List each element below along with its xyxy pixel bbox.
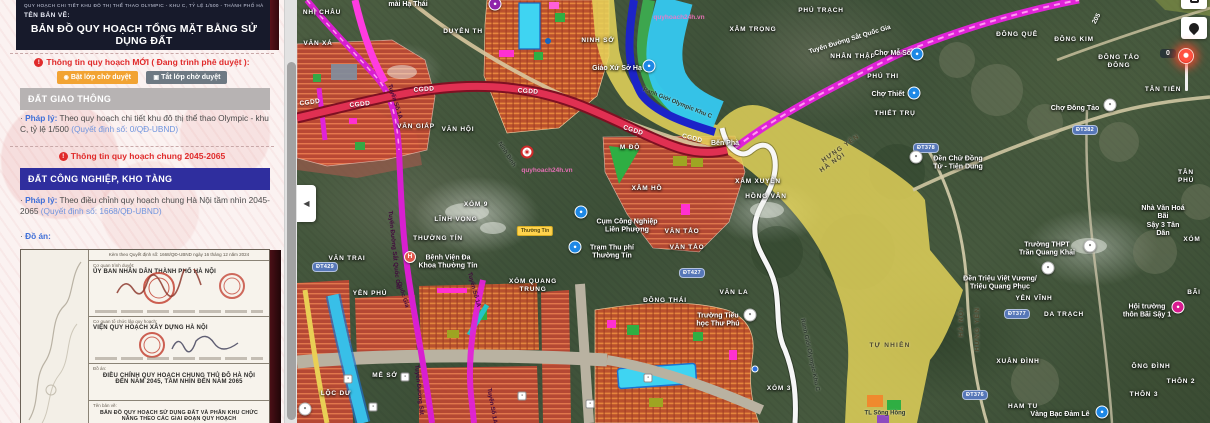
planning-sidebar: QUY HOẠCH CHI TIẾT KHU ĐÔ THỊ THỂ THAO O…: [0, 0, 284, 423]
drawing-title: BẢN ĐỒ QUY HOẠCH TỔNG MẶT BẰNG SỬ DỤNG Đ…: [24, 23, 264, 47]
map-label: LỘC DƯ: [321, 390, 351, 398]
section-header-giao-thong: ĐẤT GIAO THÔNG: [20, 88, 270, 110]
map-label: Ninh Bình: [495, 141, 516, 169]
map-label: HÀ NỘI: [818, 151, 847, 175]
document-issue-line: Kèm theo Quyết định số: 1668/QĐ-UBND ngà…: [89, 250, 269, 261]
map-pin-icon: [1187, 21, 1201, 35]
map-label: BÃI: [1187, 289, 1201, 297]
planning-map-app: QUY HOẠCH CHI TIẾT KHU ĐÔ THỊ THỂ THAO O…: [0, 0, 1210, 423]
map-label: Ranh Giới Olympic-Khu C: [798, 318, 820, 392]
map-label: CGDD: [413, 85, 434, 94]
map-label: HAM TU: [1008, 403, 1038, 411]
poi-icon-jewelry[interactable]: ●: [1096, 406, 1109, 419]
map-label: Tuyến Số 1A: [484, 388, 497, 423]
map-label: THÔN 3: [1130, 391, 1159, 399]
map-label: NHÂN THẬP: [830, 53, 875, 61]
do-an-label: · Đồ án:: [20, 231, 270, 242]
map-label: Trường Tiểu học Thư Phú: [696, 313, 739, 330]
alert-icon: !: [34, 58, 43, 67]
map-label: HƯNG YÊN: [974, 307, 982, 352]
map-label: Vàng Bạc Đảm Lê: [1030, 411, 1089, 419]
hospital-icon[interactable]: H: [404, 251, 416, 263]
map-label: VĂN GIÁP: [397, 123, 435, 131]
decorative-strip: [270, 0, 279, 50]
document-drawing-name: BẢN ĐỒ QUY HOẠCH SỬ DỤNG ĐẤT VÀ PHÂN KHU…: [89, 408, 269, 423]
approval-document-thumbnail[interactable]: Kèm theo Quyết định số: 1668/QĐ-UBND ngà…: [20, 249, 270, 423]
map-label: CGDD: [349, 100, 370, 110]
pending-layer-on-button[interactable]: ◉Bật lớp chờ duyệt: [57, 71, 138, 84]
map-label: CGDD: [299, 98, 321, 109]
poi-icon-market[interactable]: ●: [1104, 99, 1117, 112]
map-canvas[interactable]: NHỊ CHÂUVĂN XÁDUYÊN THNINH SỞXÂM TRỌNGPH…: [297, 0, 1210, 423]
map-label: XÓM 9: [464, 201, 488, 209]
chung-heading: !Thông tin quy hoạch chung 2045-2065: [0, 151, 284, 161]
document-signature-block: Kèm theo Quyết định số: 1668/QĐ-UBND ngà…: [89, 250, 269, 423]
map-label: VĂN HỘI: [442, 126, 475, 134]
map-label: TL Sông Hồng: [865, 410, 906, 417]
map-label: Chợ Đông Tảo: [1051, 105, 1100, 113]
map-label: M ĐỘ: [620, 144, 640, 152]
drawing-title-block: QUY HOẠCH CHI TIẾT KHU ĐÔ THỊ THỂ THAO O…: [16, 0, 270, 50]
document-project-name: ĐIỀU CHỈNH QUY HOẠCH CHUNG THỦ ĐÔ HÀ NỘI…: [89, 371, 269, 387]
chevron-left-icon: ◀: [303, 199, 309, 208]
map-label: Nhà Văn Hoá Bãi Sậy 3 Tân Dân: [1140, 205, 1187, 239]
map-label: TÂN TIẾN: [1145, 86, 1181, 94]
transit-icon[interactable]: ▪: [344, 375, 353, 384]
map-label: THIẾT TRỤ: [874, 110, 915, 118]
map-label: XÂM XUYÊN: [735, 178, 781, 186]
road-badge: ĐT427: [679, 268, 705, 278]
poi-icon-school[interactable]: ●: [744, 309, 757, 322]
map-label: Tuyến Đường Sắt: [412, 365, 424, 416]
transit-icon[interactable]: ▪: [644, 374, 653, 383]
map-label: PHÚ TRẠCH: [798, 7, 843, 15]
document-label: Tên bản vẽ:: [89, 401, 269, 408]
map-label: XÓM QUANG TRUNG: [509, 278, 557, 294]
layers-icon: [1190, 0, 1199, 3]
pending-layer-off-button[interactable]: ▣Tắt lớp chờ duyệt: [146, 71, 227, 84]
road-badge: ĐT377: [1004, 309, 1030, 319]
poi-icon[interactable]: ●: [299, 403, 312, 416]
document-label: Cơ quan trình duyệt:: [89, 261, 269, 268]
poi-icon[interactable]: [752, 366, 759, 373]
map-label: DUYÊN TH: [443, 28, 483, 36]
poi-icon-community-hall[interactable]: ●: [1172, 301, 1185, 314]
map-label: Trạm Thu phí Thường Tín: [590, 245, 634, 262]
map-label: Trường THPT Trần Quang Khải: [1019, 242, 1075, 259]
map-label: Đền Triệu Việt Vương/ Triệu Quang Phục: [963, 276, 1037, 293]
map-label: YÊN VĨNH: [1015, 295, 1052, 303]
map-label: HỒNG VÂN: [745, 193, 786, 201]
poi-icon-school[interactable]: ●: [1084, 240, 1097, 253]
map-label: Tuyến Số 1A: [385, 84, 403, 120]
poi-icon-market[interactable]: ●: [911, 48, 924, 61]
map-label: VĂN XÁ: [303, 40, 332, 48]
poi-icon-church[interactable]: ●: [643, 60, 656, 73]
poi-icon-market[interactable]: ●: [908, 87, 921, 100]
map-label: ĐÔNG QUÊ: [996, 31, 1038, 39]
map-label: quyhoach24h.vn: [521, 167, 572, 175]
map-label: Bến Phà: [711, 140, 739, 148]
map-label: ĐÔNG TẢO ĐÔNG: [1098, 54, 1139, 70]
new-planning-heading: !Thông tin quy hoạch MỚI ( Đang trình ph…: [0, 57, 284, 67]
map-label: XUÂN ĐÌNH: [996, 358, 1039, 366]
map-label: YÊN PHÚ: [353, 290, 388, 298]
legal-note-1: · Pháp lý: Theo quy hoạch chi tiết khu đ…: [20, 113, 270, 135]
map-label: XÂM TRỌNG: [730, 26, 777, 34]
map-label: VĂN LA: [720, 289, 749, 297]
map-label: HÀ NỘI: [958, 307, 966, 337]
map-layers-button[interactable]: [1181, 0, 1207, 9]
map-label: VĂN TẢO: [670, 244, 705, 252]
transit-icon[interactable]: ▪: [369, 403, 378, 412]
sidebar-scrollbar[interactable]: [284, 0, 297, 423]
document-label: Cơ quan tổ chức lập quy hoạch:: [89, 317, 269, 324]
map-label: CGDD: [517, 87, 538, 96]
radio-icon: ◉: [64, 75, 69, 81]
map-label: Ranh Giới Olympic Khu C: [642, 87, 713, 121]
dropped-marker-stick: [1185, 63, 1188, 91]
map-label: Tuyến Số 1A: [465, 272, 481, 309]
poi-icon-industrial-cluster[interactable]: ●: [575, 206, 588, 219]
document-label: Đồ án:: [89, 364, 269, 371]
map-label: VĂN TẢO: [665, 228, 700, 236]
map-label: Quốc Gia: [394, 281, 409, 309]
map-label: HƯNG YÊN: [821, 133, 862, 165]
map-label: TÂN PHÚ: [1174, 169, 1198, 185]
poi-icon-toll-station[interactable]: ●: [569, 241, 582, 254]
scrollbar-thumb[interactable]: [287, 62, 296, 420]
map-label: Cụm Công Nghiệp Liên Phượng: [596, 219, 657, 236]
poi-icon-temple[interactable]: ●: [910, 151, 923, 164]
map-label: ĐÔNG KIM: [1054, 36, 1094, 44]
decision-link[interactable]: (Quyết định số: 0/QĐ-UBND): [71, 124, 178, 134]
map-label: 205: [1091, 12, 1103, 25]
divider: [10, 146, 274, 147]
sidebar-collapse-button[interactable]: ◀: [297, 185, 316, 222]
transit-icon[interactable]: ▪: [401, 373, 410, 382]
map-label: mài Hạ Thái: [388, 1, 427, 9]
map-label: Thường Tín: [517, 226, 553, 236]
map-label: Tuyến Đường Sắt Quốc Gia: [385, 211, 400, 290]
map-label: THÔN 2: [1167, 378, 1196, 386]
ten-ban-ve-label: TÊN BẢN VẼ:: [24, 12, 264, 19]
map-label: CGDD: [622, 124, 644, 138]
map-label: Tuyến Đường Sắt Quốc Gia: [808, 24, 892, 56]
road-badge: ĐT429: [312, 262, 338, 272]
map-label: XÓM: [1183, 236, 1200, 244]
road-badge: ĐT382: [1072, 125, 1098, 135]
document-map-sketch: [21, 250, 89, 423]
legal-note-2: · Pháp lý: Theo điều chỉnh quy hoạch chu…: [20, 195, 270, 217]
map-label: NINH SỞ: [581, 37, 614, 45]
map-label: CGDD: [681, 133, 703, 146]
marker-count-badge: 0: [1160, 49, 1176, 58]
transit-icon[interactable]: ▪: [518, 392, 527, 401]
poi-icon-temple[interactable]: ●: [1042, 262, 1055, 275]
planning-marker-icon[interactable]: ◉: [521, 146, 534, 159]
map-label: Chợ Thiết: [872, 91, 905, 99]
drawing-subtitle: QUY HOẠCH CHI TIẾT KHU ĐÔ THỊ THỂ THAO O…: [24, 1, 264, 8]
map-label: DA TRẠCH: [1044, 311, 1084, 319]
map-label: TỰ NHIÊN: [870, 342, 911, 350]
map-label: quyhoach24h.vn: [653, 14, 704, 22]
map-label: Bệnh Viện Đa Khoa Thường Tín: [418, 255, 477, 272]
map-label: Giáo Xứ Sở Hạ: [592, 65, 642, 73]
transit-icon[interactable]: ▪: [586, 400, 595, 409]
map-label: Đền Chử Đồng Tử - Tiên Dung: [933, 156, 983, 173]
divider: [10, 53, 274, 54]
map-marker-tool-button[interactable]: [1181, 17, 1207, 39]
map-label: THƯỜNG TÍN: [413, 235, 463, 243]
dropped-marker-pin[interactable]: [1178, 48, 1194, 64]
road-badge: ĐT376: [962, 390, 988, 400]
map-label: PHÚ THI: [867, 73, 899, 81]
map-label: MỄ SỞ: [372, 372, 397, 380]
map-label: NHỊ CHÂU: [303, 9, 341, 17]
poi-icon-craft-village[interactable]: ●: [489, 0, 502, 11]
section-header-cong-nghiep: ĐẤT CÔNG NGHIỆP, KHO TÀNG: [20, 168, 270, 190]
red-stamp-icon: [97, 269, 267, 307]
decision-link[interactable]: (Quyết định số: 1668/QĐ-UBND): [41, 206, 162, 216]
map-label: XÓM 3: [767, 385, 791, 393]
map-label: Chợ Mễ Sở: [874, 50, 912, 58]
map-label: ÔNG ĐÌNH: [1132, 363, 1171, 371]
map-label: XÂM HỒ: [632, 185, 663, 193]
map-label: Hội trường thôn Bãi Sậy 1: [1123, 304, 1171, 321]
layers-icon: ▣: [153, 75, 159, 81]
map-label: ĐÔNG THÁI: [643, 297, 687, 305]
document-edge: [270, 250, 281, 423]
map-overlay-layer: NHỊ CHÂUVĂN XÁDUYÊN THNINH SỞXÂM TRỌNGPH…: [297, 0, 1210, 423]
alert-icon: !: [59, 152, 68, 161]
map-label: LĨNH VỌNG: [434, 216, 477, 224]
